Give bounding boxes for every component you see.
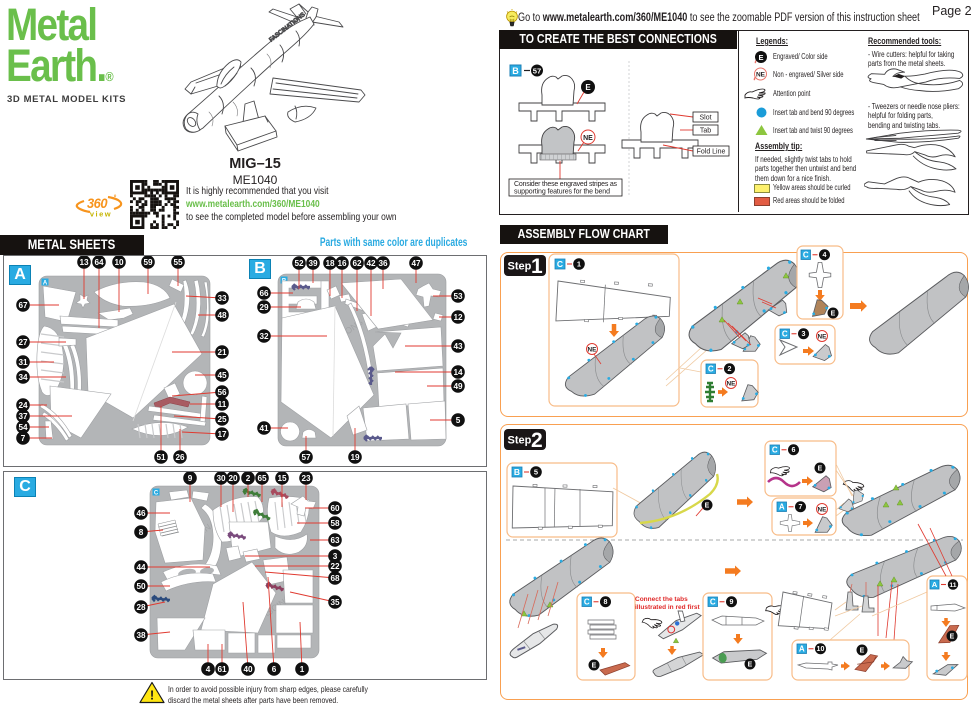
svg-text:50: 50 [136, 582, 146, 591]
svg-text:5: 5 [534, 468, 538, 477]
svg-text:Consider these engraved stripe: Consider these engraved stripes as [514, 181, 618, 188]
svg-text:Tab: Tab [700, 128, 711, 135]
svg-text:E: E [705, 503, 710, 510]
svg-text:Step: Step [508, 435, 532, 447]
svg-text:8: 8 [139, 528, 144, 537]
svg-text:62: 62 [352, 259, 362, 268]
svg-text:38: 38 [136, 631, 146, 640]
svg-text:7: 7 [21, 434, 26, 443]
svg-text:26: 26 [175, 453, 185, 462]
svg-text:1: 1 [531, 255, 543, 278]
svg-text:63: 63 [330, 536, 340, 545]
svg-text:8: 8 [604, 598, 608, 606]
svg-text:22: 22 [330, 562, 340, 571]
svg-text:24: 24 [18, 401, 28, 410]
svg-text:7: 7 [799, 503, 803, 511]
svg-text:NE: NE [588, 346, 598, 353]
svg-text:58: 58 [330, 519, 340, 528]
svg-text:10: 10 [114, 258, 124, 267]
svg-text:27: 27 [18, 338, 28, 347]
svg-text:E: E [585, 83, 591, 92]
svg-text:E: E [592, 663, 597, 670]
svg-text:57: 57 [301, 453, 311, 462]
svg-text:supporting features for the be: supporting features for the bend [514, 189, 610, 196]
svg-text:6: 6 [272, 665, 277, 674]
svg-text:55: 55 [173, 258, 183, 267]
svg-text:1: 1 [577, 260, 581, 269]
svg-text:4: 4 [206, 665, 211, 674]
svg-text:11: 11 [218, 400, 227, 409]
svg-text:A: A [799, 645, 805, 654]
svg-text:36: 36 [378, 259, 388, 268]
svg-text:32: 32 [259, 332, 269, 341]
svg-text:45: 45 [217, 371, 227, 380]
svg-text:11: 11 [949, 582, 956, 589]
svg-text:E: E [860, 648, 865, 655]
svg-text:NE: NE [583, 135, 593, 142]
svg-text:28: 28 [136, 603, 146, 612]
svg-text:A: A [43, 281, 48, 287]
svg-text:29: 29 [259, 303, 269, 312]
svg-text:17: 17 [217, 430, 227, 439]
svg-text:46: 46 [136, 509, 146, 518]
svg-text:NE: NE [727, 380, 737, 387]
svg-text:NE: NE [818, 506, 828, 513]
svg-text:44: 44 [136, 563, 146, 572]
svg-text:41: 41 [259, 424, 269, 433]
svg-text:39: 39 [308, 259, 318, 268]
svg-text:54: 54 [18, 423, 28, 432]
svg-text:B: B [512, 66, 519, 76]
svg-text:25: 25 [217, 415, 227, 424]
svg-text:12: 12 [453, 313, 463, 322]
svg-text:Slot: Slot [699, 115, 711, 122]
svg-text:30: 30 [216, 474, 226, 483]
svg-text:3: 3 [802, 330, 806, 338]
svg-text:68: 68 [330, 574, 340, 583]
svg-text:57: 57 [533, 66, 541, 75]
svg-text:43: 43 [453, 342, 463, 351]
svg-text:C: C [708, 365, 714, 374]
svg-text:20: 20 [228, 474, 238, 483]
svg-text:40: 40 [243, 665, 253, 674]
svg-text:view: view [90, 210, 112, 219]
svg-text:53: 53 [453, 292, 463, 301]
svg-text:1: 1 [300, 665, 305, 674]
svg-text:52: 52 [294, 259, 304, 268]
svg-text:4: 4 [823, 251, 827, 259]
svg-text:!: ! [150, 688, 154, 703]
svg-text:18: 18 [325, 259, 335, 268]
svg-text:C: C [154, 491, 159, 497]
svg-text:C: C [710, 598, 716, 607]
svg-text:13: 13 [79, 258, 89, 267]
svg-text:C: C [782, 330, 788, 339]
svg-text:5: 5 [456, 416, 461, 425]
svg-text:14: 14 [453, 368, 463, 377]
svg-text:37: 37 [18, 412, 28, 421]
svg-text:21: 21 [217, 348, 227, 357]
svg-text:C: C [584, 598, 590, 607]
svg-text:Connect the tabs: Connect the tabs [635, 596, 688, 603]
svg-text:15: 15 [277, 474, 287, 483]
svg-text:33: 33 [217, 294, 227, 303]
svg-text:°: ° [114, 194, 117, 202]
svg-text:65: 65 [257, 474, 267, 483]
svg-text:Step: Step [508, 261, 532, 273]
svg-text:34: 34 [18, 373, 28, 382]
svg-text:48: 48 [217, 311, 227, 320]
svg-text:2: 2 [531, 429, 543, 452]
svg-text:B: B [514, 467, 520, 477]
svg-text:23: 23 [301, 474, 311, 483]
svg-text:51: 51 [156, 453, 166, 462]
svg-text:9: 9 [730, 598, 734, 606]
svg-text:59: 59 [143, 258, 153, 267]
svg-text:Fold Line: Fold Line [697, 149, 726, 156]
svg-text:42: 42 [366, 259, 376, 268]
svg-text:E: E [748, 662, 753, 669]
svg-text:2: 2 [246, 474, 251, 483]
svg-text:E: E [818, 466, 823, 473]
svg-text:31: 31 [18, 358, 28, 367]
svg-text:A: A [779, 503, 785, 512]
svg-text:C: C [772, 446, 778, 455]
svg-text:56: 56 [217, 388, 227, 397]
svg-text:illustrated in red first: illustrated in red first [635, 604, 700, 611]
svg-text:66: 66 [259, 289, 269, 298]
svg-text:NE: NE [756, 72, 766, 79]
svg-text:A: A [932, 580, 938, 589]
svg-text:16: 16 [337, 259, 347, 268]
svg-text:64: 64 [94, 258, 104, 267]
svg-text:C: C [557, 259, 563, 269]
svg-text:49: 49 [453, 382, 463, 391]
svg-text:9: 9 [188, 474, 193, 483]
svg-text:NE: NE [818, 333, 828, 340]
svg-text:E: E [831, 311, 836, 318]
svg-text:35: 35 [330, 598, 340, 607]
svg-text:60: 60 [330, 504, 340, 513]
svg-text:6: 6 [792, 446, 796, 454]
svg-text:E: E [758, 53, 763, 62]
svg-text:E: E [950, 634, 955, 641]
svg-text:2: 2 [728, 365, 732, 373]
svg-text:19: 19 [350, 453, 360, 462]
svg-text:47: 47 [411, 259, 421, 268]
svg-text:C: C [803, 251, 809, 260]
svg-text:61: 61 [217, 665, 227, 674]
svg-text:10: 10 [817, 645, 825, 653]
svg-text:67: 67 [18, 301, 28, 310]
